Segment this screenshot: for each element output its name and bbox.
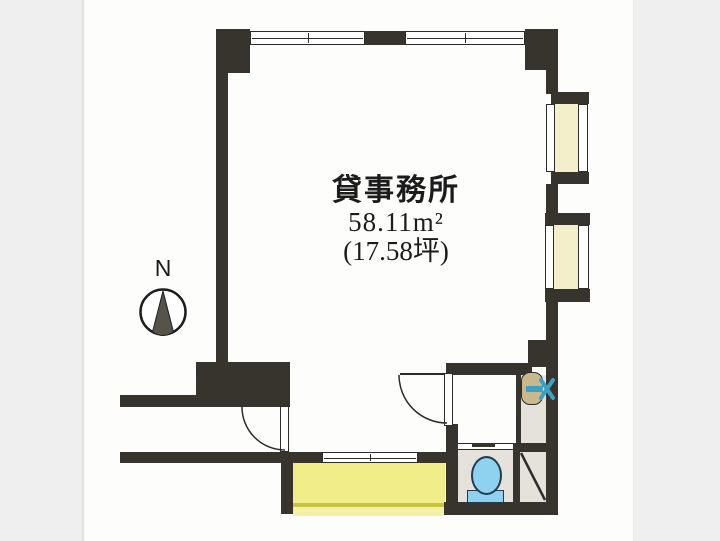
bay1-window-inner (546, 104, 555, 172)
window-divider (308, 33, 309, 43)
wall-pillar-top-right (525, 29, 558, 70)
wall-right-jog-block (528, 340, 558, 367)
washroom-door-open-line (400, 373, 445, 375)
sink-icon (521, 372, 543, 405)
room-area-sqm: 58.11m² (300, 208, 492, 237)
wall-top-center (365, 31, 405, 45)
wall-right-1 (546, 68, 558, 94)
compass-icon (141, 290, 186, 336)
window-top-1 (250, 31, 365, 45)
room-label-block: 貸事務所 58.11m² (17.58坪) (300, 174, 492, 266)
bay2-cap-top (545, 213, 590, 225)
washroom-door-leaf (444, 373, 453, 426)
entrance-door-leaf (280, 406, 289, 452)
wall-utility-top (446, 363, 532, 375)
page-right-margin (633, 0, 720, 541)
wall-corridor-lower (120, 452, 290, 463)
balcony-floor (293, 461, 445, 503)
window-divider (370, 454, 371, 461)
page-left-margin (0, 0, 84, 541)
wall-right-2 (546, 184, 558, 214)
room-area-tsubo: (17.58坪) (300, 237, 492, 266)
wall-right-4 (546, 367, 558, 512)
wall-balcony-window-left (290, 452, 323, 463)
window-divider (465, 33, 466, 43)
compass-circle (141, 290, 186, 335)
room-name-label: 貸事務所 (300, 174, 492, 208)
bay2-window-inner (545, 225, 554, 289)
balcony-outer-strip (293, 507, 445, 516)
bay1-window-outer (578, 104, 588, 172)
wall-corridor-upper (120, 395, 196, 407)
bay-window-1-sill (553, 104, 579, 172)
wall-left (216, 70, 228, 363)
wall-pipe-space-left (513, 443, 520, 503)
bay1-cap-top (551, 92, 589, 104)
bay-window-2-sill (553, 225, 579, 289)
wall-balcony-window-right (417, 452, 446, 463)
window-balcony (322, 452, 418, 463)
washroom-door-swing-arc (399, 375, 447, 423)
bay2-cap-bottom (545, 289, 590, 302)
wall-pillar-top-left (216, 29, 250, 73)
compass-north-label: N (150, 255, 176, 282)
floor-plan-page: 貸事務所 58.11m² (17.58坪) N (0, 0, 720, 541)
bay2-window-outer (578, 225, 589, 289)
wall-pipe-space-top (513, 443, 558, 452)
window-top-2 (405, 31, 525, 45)
wall-right-3 (546, 302, 558, 340)
pipe-space-floor (520, 452, 546, 502)
toilet-sliding-door-panel (472, 443, 495, 447)
compass-needle (153, 291, 174, 336)
toilet-icon (471, 456, 502, 495)
bay1-cap-bottom (551, 172, 589, 184)
wall-bottom-right (444, 502, 558, 515)
wall-stair-block (196, 362, 290, 407)
entrance-door-swing-arc (242, 407, 285, 450)
